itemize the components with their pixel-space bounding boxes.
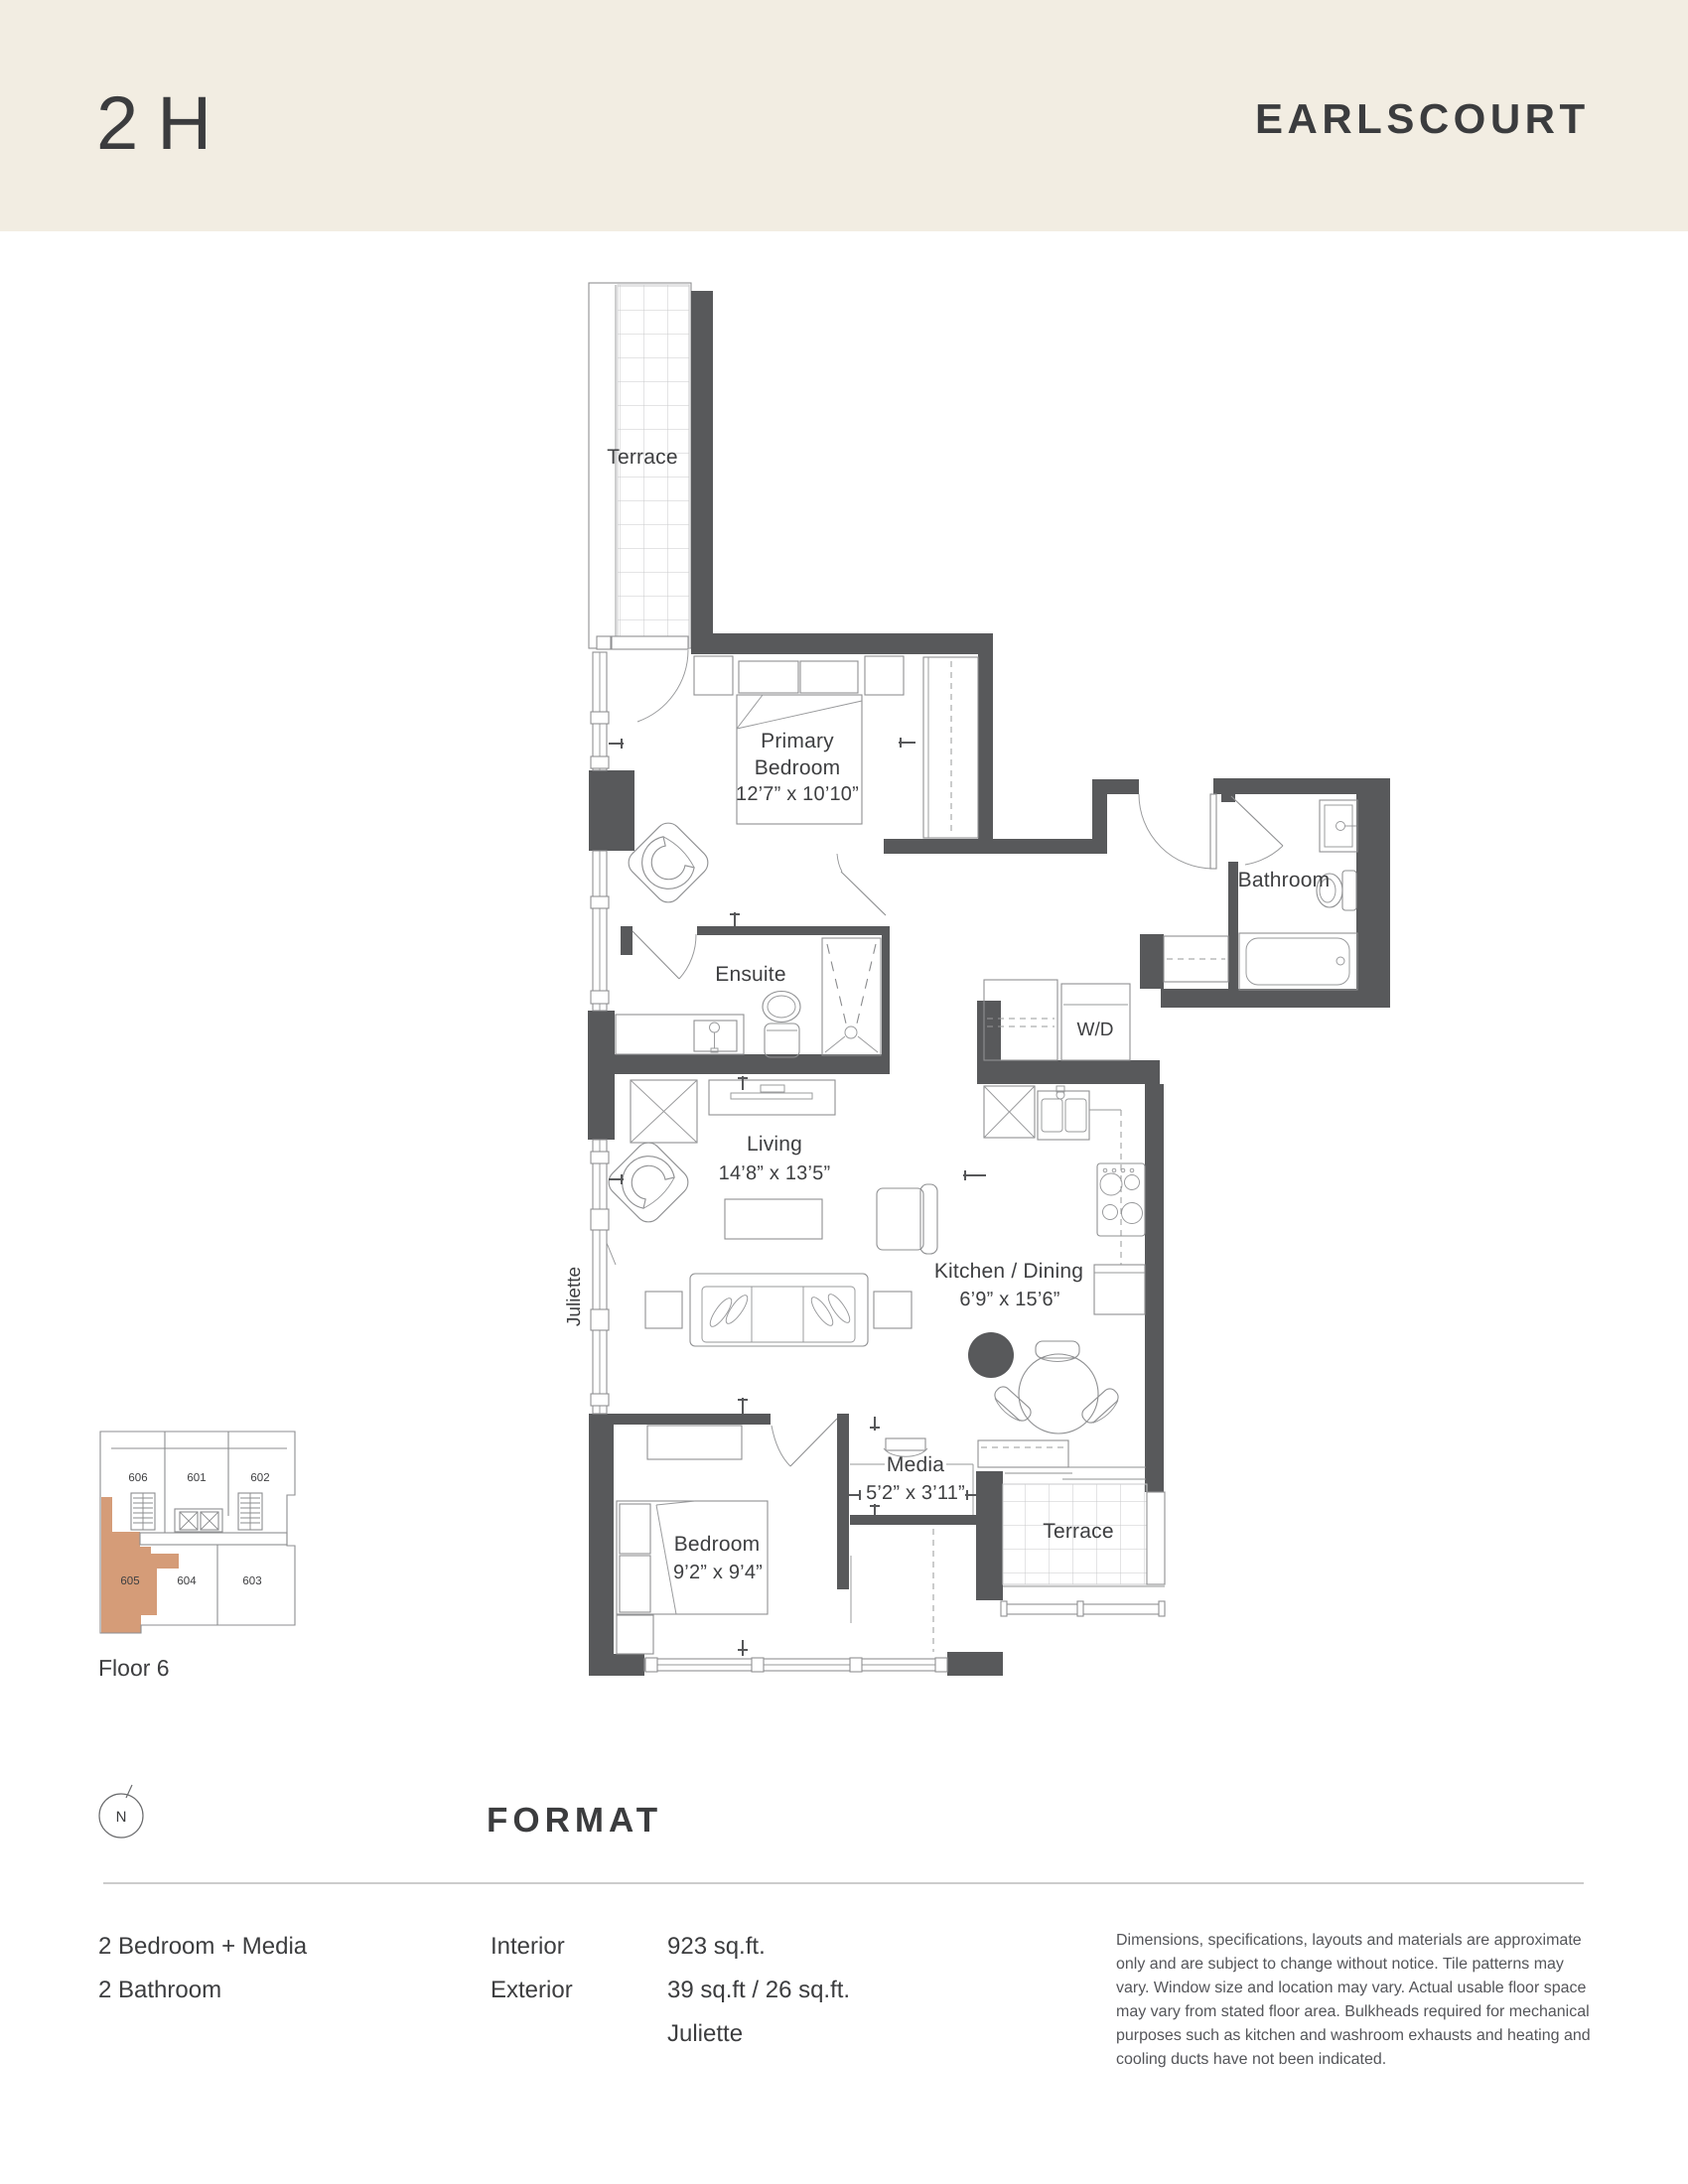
svg-text:2H: 2H: [96, 81, 230, 166]
svg-text:601: 601: [187, 1472, 206, 1484]
svg-text:2 Bathroom: 2 Bathroom: [98, 1977, 221, 2003]
svg-text:W/D: W/D: [1077, 1020, 1114, 1040]
svg-text:Dimensions, specifications, la: Dimensions, specifications, layouts and …: [1116, 1932, 1582, 1949]
svg-text:cooling ducts have not been in: cooling ducts have not been indicated.: [1116, 2051, 1386, 2068]
svg-text:Juliette: Juliette: [667, 2020, 743, 2047]
svg-text:Exterior: Exterior: [491, 1977, 573, 2003]
svg-text:N: N: [116, 1809, 127, 1826]
svg-text:Ensuite: Ensuite: [715, 963, 785, 986]
svg-text:2 Bedroom + Media: 2 Bedroom + Media: [98, 1933, 308, 1960]
svg-text:5’2” x 3’11”: 5’2” x 3’11”: [866, 1482, 965, 1504]
svg-text:923 sq.ft.: 923 sq.ft.: [667, 1933, 766, 1960]
svg-text:Bathroom: Bathroom: [1238, 869, 1331, 891]
svg-text:602: 602: [250, 1472, 269, 1484]
svg-text:14’8” x 13’5”: 14’8” x 13’5”: [719, 1162, 831, 1184]
svg-text:Living: Living: [747, 1133, 802, 1156]
svg-text:Bedroom: Bedroom: [755, 756, 841, 779]
svg-text:Primary: Primary: [761, 730, 834, 752]
svg-text:Terrace: Terrace: [607, 446, 677, 469]
svg-text:Bedroom: Bedroom: [674, 1533, 761, 1556]
svg-text:12’7” x 10’10”: 12’7” x 10’10”: [736, 783, 859, 805]
svg-text:FORMAT: FORMAT: [487, 1801, 662, 1840]
svg-text:606: 606: [128, 1472, 147, 1484]
svg-text:Interior: Interior: [491, 1933, 565, 1960]
svg-text:6’9” x 15’6”: 6’9” x 15’6”: [959, 1289, 1059, 1310]
svg-text:604: 604: [177, 1575, 197, 1587]
svg-text:only and are subject to change: only and are subject to change without n…: [1116, 1956, 1564, 1973]
svg-text:603: 603: [242, 1575, 261, 1587]
svg-text:purposes such as kitchen and w: purposes such as kitchen and washroom ex…: [1116, 2027, 1591, 2044]
svg-text:EARLSCOURT: EARLSCOURT: [1255, 95, 1590, 142]
svg-text:Media: Media: [887, 1453, 944, 1476]
svg-text:vary. Window size and location: vary. Window size and location may vary.…: [1116, 1979, 1587, 1996]
svg-text:Terrace: Terrace: [1043, 1520, 1113, 1543]
svg-text:Floor 6: Floor 6: [98, 1655, 170, 1681]
svg-text:Kitchen / Dining: Kitchen / Dining: [934, 1260, 1083, 1283]
svg-text:may vary from stated floor are: may vary from stated floor area. Bulkhea…: [1116, 2003, 1590, 2020]
svg-text:9’2” x 9’4”: 9’2” x 9’4”: [673, 1562, 763, 1583]
svg-text:Juliette: Juliette: [564, 1267, 585, 1326]
svg-text:605: 605: [120, 1575, 139, 1587]
svg-text:39 sq.ft / 26 sq.ft.: 39 sq.ft / 26 sq.ft.: [667, 1977, 850, 2003]
